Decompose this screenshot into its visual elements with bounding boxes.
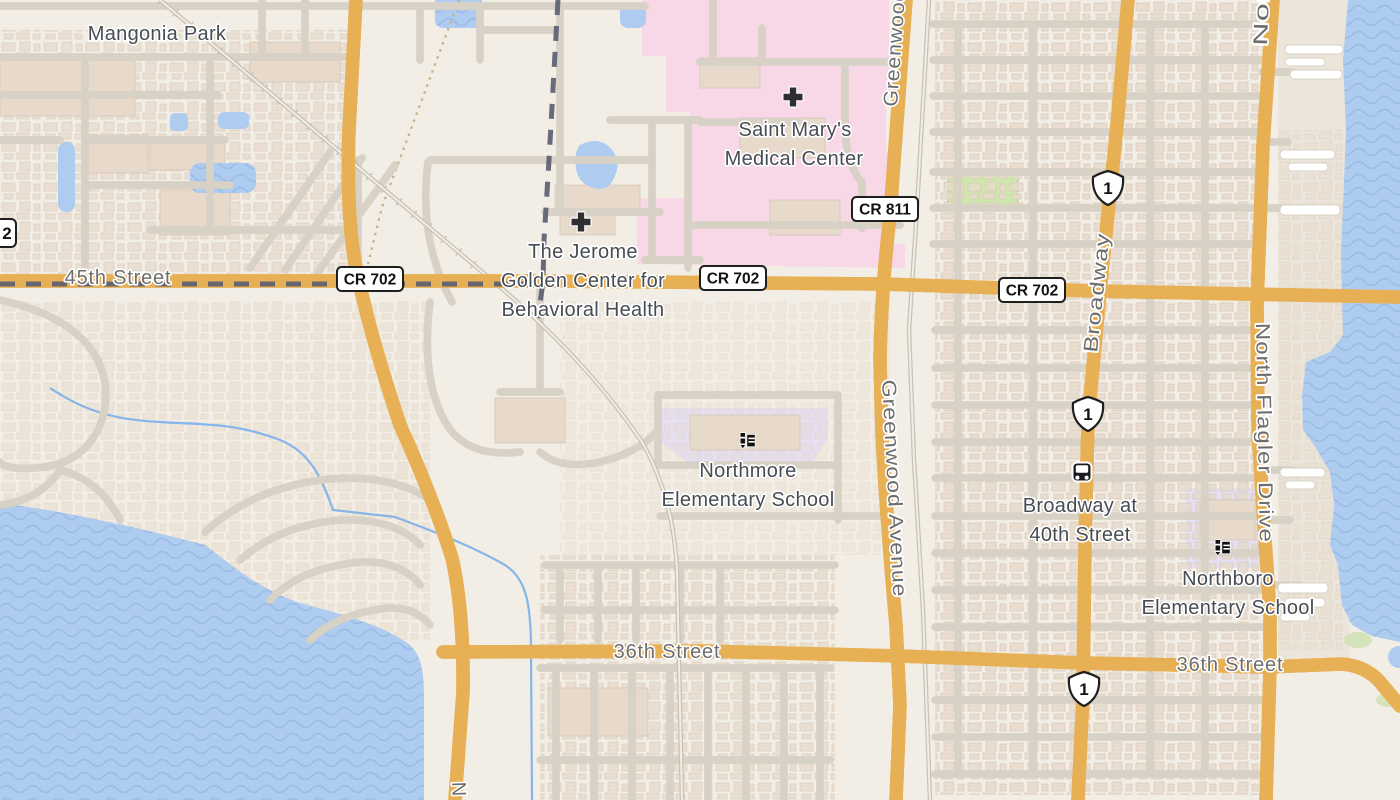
street-label-36th-east: 36th Street xyxy=(1177,654,1284,676)
shield-label: CR 702 xyxy=(707,271,760,288)
map-svg[interactable]: 2 CR 702 CR 702 CR 702 CR 811 1 1 1 xyxy=(0,0,1400,800)
street-label-45th: 45th Street xyxy=(65,267,172,289)
place-label-jerome-2: Golden Center for xyxy=(501,270,665,292)
route-shield-cr702: CR 702 xyxy=(700,266,766,290)
street-label-north-flagler: North Flagler Drive xyxy=(1251,323,1277,543)
place-label-broadway40-1: Broadway at xyxy=(1023,495,1138,517)
route-shield-cr702: CR 702 xyxy=(337,267,403,291)
street-label-n-partial: N xyxy=(447,781,470,797)
place-label-northmore-1: Northmore xyxy=(699,460,796,482)
street-label-north-flagler-top: Nor xyxy=(1250,0,1274,46)
shield-label: 1 xyxy=(1083,405,1092,424)
shield-label: 2 xyxy=(2,224,11,243)
place-label-mangonia-park: Mangonia Park xyxy=(88,23,227,45)
route-shield-cr702: CR 702 xyxy=(999,278,1065,302)
shield-label: 1 xyxy=(1079,680,1088,699)
pond xyxy=(170,113,188,131)
shield-label: CR 702 xyxy=(1006,283,1059,300)
place-label-saint-marys-1: Saint Mary's xyxy=(738,119,851,141)
street-label-36th-west: 36th Street xyxy=(614,641,721,663)
place-label-northboro-1: Northboro xyxy=(1182,568,1274,590)
school-icon xyxy=(741,433,755,448)
shield-label: 1 xyxy=(1103,179,1112,198)
place-label-saint-marys-2: Medical Center xyxy=(725,148,864,170)
route-shield-sr-partial: 2 xyxy=(0,219,16,247)
pond xyxy=(218,112,249,129)
place-label-broadway40-2: 40th Street xyxy=(1029,524,1130,546)
pond xyxy=(58,142,75,212)
route-shield-cr811: CR 811 xyxy=(852,197,918,221)
place-label-jerome-3: Behavioral Health xyxy=(502,299,665,321)
place-label-northmore-2: Elementary School xyxy=(662,489,835,511)
map-canvas[interactable]: 2 CR 702 CR 702 CR 702 CR 811 1 1 1 xyxy=(0,0,1400,800)
place-label-jerome-1: The Jerome xyxy=(528,241,638,263)
school-icon xyxy=(1216,540,1230,555)
shield-label: CR 702 xyxy=(344,272,397,289)
place-label-northboro-2: Elementary School xyxy=(1142,597,1315,619)
bus-stop-icon xyxy=(1073,463,1092,482)
shield-label: CR 811 xyxy=(859,202,911,219)
